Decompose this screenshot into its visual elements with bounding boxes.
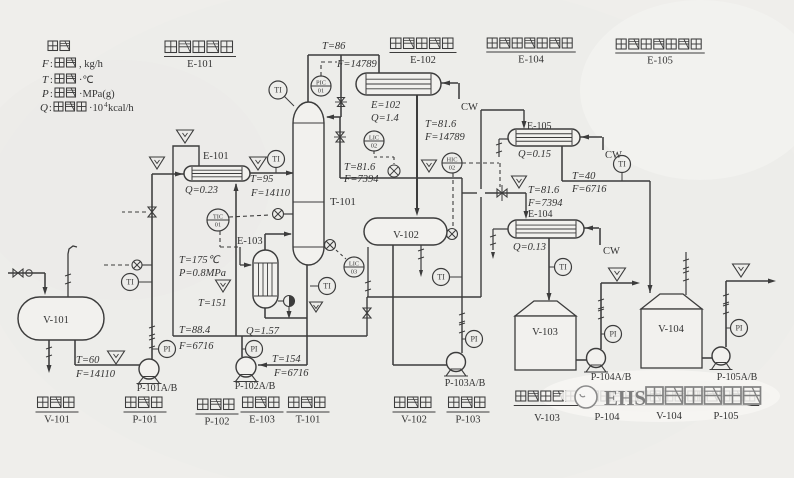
svg-text:01: 01 <box>215 221 221 228</box>
svg-text:Q=1.57: Q=1.57 <box>246 326 280 337</box>
svg-text:P-103: P-103 <box>455 415 480 426</box>
svg-text:02: 02 <box>371 142 377 149</box>
svg-text:CW: CW <box>603 246 620 257</box>
svg-text:F=14110: F=14110 <box>250 188 291 199</box>
svg-text:Q=1.4: Q=1.4 <box>371 113 400 124</box>
svg-text:Q: Q <box>40 102 48 114</box>
svg-text:T=81.6: T=81.6 <box>425 119 457 130</box>
svg-text:Q=0.13: Q=0.13 <box>513 242 546 253</box>
svg-text:E-105: E-105 <box>527 121 551 132</box>
svg-text:E-104: E-104 <box>518 55 544 66</box>
svg-text:02: 02 <box>449 164 455 171</box>
svg-text:F=14110: F=14110 <box>75 369 116 380</box>
svg-text:·MPa(g): ·MPa(g) <box>79 89 115 100</box>
svg-text:F=14789: F=14789 <box>424 132 465 143</box>
svg-text:, kg/h: , kg/h <box>79 59 104 70</box>
svg-text:P-105: P-105 <box>713 411 738 422</box>
svg-text:V-103: V-103 <box>532 327 558 338</box>
svg-text:P-101: P-101 <box>132 415 157 426</box>
svg-text:Q=0.23: Q=0.23 <box>185 185 218 196</box>
svg-text:V-104: V-104 <box>658 324 685 335</box>
svg-text:E-104: E-104 <box>528 209 552 220</box>
svg-text:LIC: LIC <box>349 260 359 267</box>
svg-text:T=86: T=86 <box>322 41 346 52</box>
svg-text:TI: TI <box>437 273 445 282</box>
svg-text:V-102: V-102 <box>401 415 427 426</box>
svg-text:TI: TI <box>274 86 282 95</box>
svg-text:HIC: HIC <box>446 156 457 163</box>
svg-text:EHS: EHS <box>604 386 646 410</box>
svg-text:V-103: V-103 <box>534 413 560 424</box>
svg-text:V-102: V-102 <box>393 230 419 241</box>
svg-text:Q=0.15: Q=0.15 <box>518 149 551 160</box>
svg-text:P-102A/B: P-102A/B <box>235 381 276 392</box>
svg-text:T=154: T=154 <box>272 354 301 365</box>
svg-text:E-103: E-103 <box>237 236 263 247</box>
svg-text:TIC: TIC <box>213 213 223 220</box>
svg-text:TI: TI <box>323 282 331 291</box>
svg-text:F=14789: F=14789 <box>336 59 377 70</box>
svg-text:E-105: E-105 <box>647 56 673 67</box>
svg-text:P-101A/B: P-101A/B <box>137 383 178 394</box>
svg-text::: : <box>50 59 53 70</box>
svg-text:LIC: LIC <box>369 134 379 141</box>
svg-text:·10: ·10 <box>89 103 103 114</box>
svg-text:PI: PI <box>250 345 257 354</box>
svg-text:T-101: T-101 <box>330 196 356 208</box>
svg-text:E-102: E-102 <box>410 55 436 66</box>
svg-text:PI: PI <box>470 335 477 344</box>
svg-text:TI: TI <box>559 263 567 272</box>
svg-text:P-104: P-104 <box>594 412 620 423</box>
svg-text:TI: TI <box>618 160 626 169</box>
svg-text:F=6716: F=6716 <box>571 184 607 195</box>
svg-text:P=0.8MPa: P=0.8MPa <box>178 268 226 279</box>
svg-text:V-104: V-104 <box>656 411 683 422</box>
svg-text:T: T <box>42 74 49 86</box>
svg-text:T=95: T=95 <box>250 174 273 185</box>
svg-text:F=6716: F=6716 <box>178 341 214 352</box>
svg-text:F=7394: F=7394 <box>343 174 379 185</box>
svg-text:01: 01 <box>318 87 324 94</box>
svg-text:TI: TI <box>126 278 134 287</box>
svg-text:E-101: E-101 <box>203 151 229 162</box>
svg-text:V-101: V-101 <box>44 415 70 426</box>
svg-text:E-101: E-101 <box>187 59 213 70</box>
svg-text::: : <box>49 103 52 114</box>
svg-text::: : <box>50 75 53 86</box>
svg-text:F: F <box>41 58 49 70</box>
svg-text:E=102: E=102 <box>370 100 401 111</box>
svg-text::: : <box>50 89 53 100</box>
svg-text:P-102: P-102 <box>204 417 229 428</box>
svg-text:F=7394: F=7394 <box>527 198 563 209</box>
svg-text:T=81.6: T=81.6 <box>528 185 560 196</box>
svg-text:T=60: T=60 <box>76 355 100 366</box>
svg-text:P-103A/B: P-103A/B <box>445 378 486 389</box>
svg-text:P: P <box>41 88 49 100</box>
svg-text:PI: PI <box>735 324 742 333</box>
svg-text:·℃: ·℃ <box>79 75 94 86</box>
svg-text:03: 03 <box>351 268 357 275</box>
svg-text:T=175℃: T=175℃ <box>179 255 221 266</box>
svg-text:PIC: PIC <box>316 79 326 86</box>
svg-text:CW: CW <box>461 102 478 113</box>
svg-text:P-105A/B: P-105A/B <box>717 372 758 383</box>
svg-text:PI: PI <box>609 330 616 339</box>
svg-text:T=88.4: T=88.4 <box>179 325 211 336</box>
svg-text:T=151: T=151 <box>198 298 227 309</box>
svg-text:kcal/h: kcal/h <box>108 103 134 114</box>
svg-text:F=6716: F=6716 <box>273 368 309 379</box>
svg-text:T=40: T=40 <box>572 171 596 182</box>
svg-text:T-101: T-101 <box>296 415 321 426</box>
svg-text:E-103: E-103 <box>249 415 275 426</box>
svg-text:PI: PI <box>163 345 170 354</box>
svg-text:TI: TI <box>272 155 280 164</box>
svg-text:T=81.6: T=81.6 <box>344 162 376 173</box>
svg-text:V-101: V-101 <box>43 315 69 326</box>
